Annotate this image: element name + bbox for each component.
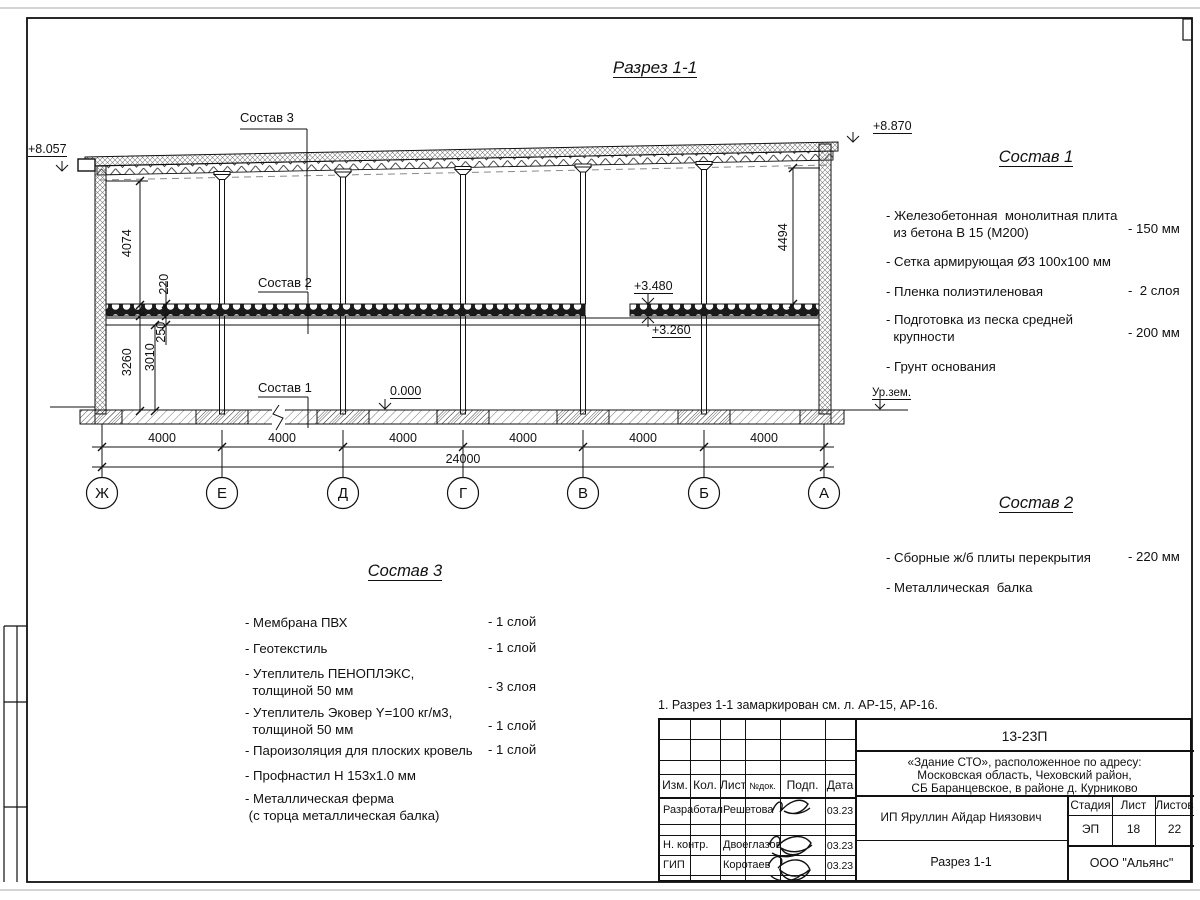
drawing-title: Разрез 1-1 — [570, 58, 740, 78]
vdim-4074: 4074 — [120, 213, 134, 273]
leader-comp3: Состав 3 — [240, 111, 294, 126]
vdim-4494: 4494 — [776, 207, 790, 267]
ground-level-label: Ур.зем. — [872, 387, 911, 400]
stamp-col-izm: Изм. — [660, 779, 690, 793]
grid-bubble-a: А — [808, 485, 840, 502]
elevation-top-left: +8.057 — [28, 142, 67, 156]
dim-bay-4: 4000 — [493, 431, 553, 445]
stamp-name-developer: Решетова — [723, 804, 773, 817]
stamp-sheets-label: Листов — [1155, 799, 1194, 813]
comp3-item-5: - Пароизоляция для плоских кровель — [245, 742, 473, 759]
stamp-role-developer: Разработал — [663, 804, 723, 817]
composition-1: Состав 1 - Железобетонная монолитная пли… — [880, 148, 1192, 167]
drawing-sheet: Разрез 1-1 +8.057 +8.870 Состав 3 Состав… — [0, 0, 1200, 900]
comp3-value-2: - 1 слой — [488, 640, 536, 655]
comp1-item-1: - Железобетонная монолитная плита из бет… — [886, 207, 1118, 241]
vdim-3260: 3260 — [120, 332, 134, 392]
dim-bay-5: 4000 — [613, 431, 673, 445]
comp1-item-4: - Подготовка из песка средней крупности — [886, 311, 1073, 345]
comp1-item-2: - Сетка армирующая Ø3 100х100 мм — [886, 253, 1111, 270]
comp3-item-4: - Утеплитель Эковер Y=100 кг/м3, толщино… — [245, 704, 452, 738]
comp3-item-2: - Геотекстиль — [245, 640, 327, 657]
stamp-sheets-value: 22 — [1155, 823, 1194, 837]
grid-bubble-e: Е — [206, 485, 238, 502]
grid-bubble-v: В — [567, 485, 599, 502]
composition-1-title: Состав 1 — [999, 148, 1073, 167]
comp1-value-3: - 2 слоя — [1128, 283, 1180, 298]
composition-3: Состав 3 - Мембрана ПВХ - 1 слой - Геоте… — [245, 562, 565, 581]
stamp-name-ncontrol: Двоеглазов — [723, 839, 781, 852]
comp1-value-4: - 200 мм — [1128, 325, 1180, 340]
comp3-value-1: - 1 слой — [488, 614, 536, 629]
comp3-item-1: - Мембрана ПВХ — [245, 614, 347, 631]
stamp-project-line-3: СБ Баранцевское, в районе д. Курниково — [855, 782, 1194, 796]
title-block: Изм. Кол. Лист №док. Подп. Дата Разработ… — [658, 718, 1192, 882]
comp1-item-5: - Грунт основания — [886, 358, 996, 375]
grid-bubble-d: Д — [327, 485, 359, 502]
stamp-client: ИП Яруллин Айдар Ниязович — [857, 811, 1065, 825]
comp3-value-5: - 1 слой — [488, 742, 536, 757]
elevation-floor: 0.000 — [390, 384, 421, 398]
grid-bubble-b: Б — [688, 485, 720, 502]
stamp-date-gip: 03.23 — [825, 860, 855, 872]
comp3-item-7: - Металлическая ферма (с торца металличе… — [245, 790, 439, 824]
stamp-stage-label: Стадия — [1069, 799, 1112, 813]
comp3-value-3: - 3 слоя — [488, 679, 536, 694]
stamp-stage-value: ЭП — [1069, 823, 1112, 837]
dim-total: 24000 — [433, 452, 493, 466]
dim-bay-2: 4000 — [252, 431, 312, 445]
composition-3-title: Состав 3 — [368, 562, 442, 581]
stamp-col-ndok: №док. — [745, 781, 780, 791]
stamp-sheet-title: Разрез 1-1 — [857, 855, 1065, 869]
grid-bubble-g: Г — [447, 485, 479, 502]
comp1-item-3: - Пленка полиэтиленовая — [886, 283, 1043, 300]
stamp-date-ncontrol: 03.23 — [825, 840, 855, 852]
comp2-item-2: - Металлическая балка — [886, 579, 1032, 596]
stamp-company: ООО "Альянс" — [1069, 856, 1194, 870]
elevation-slab-top: +3.480 — [634, 279, 673, 293]
composition-2: Состав 2 - Сборные ж/б плиты перекрытия … — [880, 494, 1192, 513]
stamp-col-podp: Подп. — [780, 779, 825, 793]
stamp-role-ncontrol: Н. контр. — [663, 839, 708, 852]
dim-bay-1: 4000 — [132, 431, 192, 445]
leader-comp1: Состав 1 — [258, 381, 312, 396]
vdim-3010: 3010 — [143, 327, 157, 387]
comp3-value-4: - 1 слой — [488, 718, 536, 733]
dim-bay-3: 4000 — [373, 431, 433, 445]
stamp-sheet-value: 18 — [1112, 823, 1155, 837]
comp1-value-1: - 150 мм — [1128, 221, 1180, 236]
comp3-item-6: - Профнастил Н 153х1.0 мм — [245, 767, 416, 784]
note-text: 1. Разрез 1-1 замаркирован см. л. АР-15,… — [658, 698, 938, 712]
elevation-top-right: +8.870 — [873, 119, 912, 133]
comp2-value-1: - 220 мм — [1128, 549, 1180, 564]
comp3-item-3: - Утеплитель ПЕНОПЛЭКС, толщиной 50 мм — [245, 665, 414, 699]
stamp-doc-number: 13-23П — [855, 728, 1194, 744]
stamp-role-gip: ГИП — [663, 859, 685, 872]
stamp-col-kol: Кол. — [690, 779, 720, 793]
composition-2-title: Состав 2 — [999, 494, 1073, 513]
stamp-col-list: Лист — [720, 779, 745, 793]
stamp-name-gip: Коротаев — [723, 859, 771, 872]
stamp-col-data: Дата — [825, 779, 855, 793]
grid-bubble-zh: Ж — [86, 485, 118, 502]
dim-bay-6: 4000 — [734, 431, 794, 445]
stamp-date-developer: 03.23 — [825, 805, 855, 817]
stamp-sheet-label: Лист — [1112, 799, 1155, 813]
leader-comp2: Состав 2 — [258, 276, 312, 291]
comp2-item-1: - Сборные ж/б плиты перекрытия — [886, 549, 1091, 566]
elevation-slab-bottom: +3.260 — [652, 323, 691, 337]
